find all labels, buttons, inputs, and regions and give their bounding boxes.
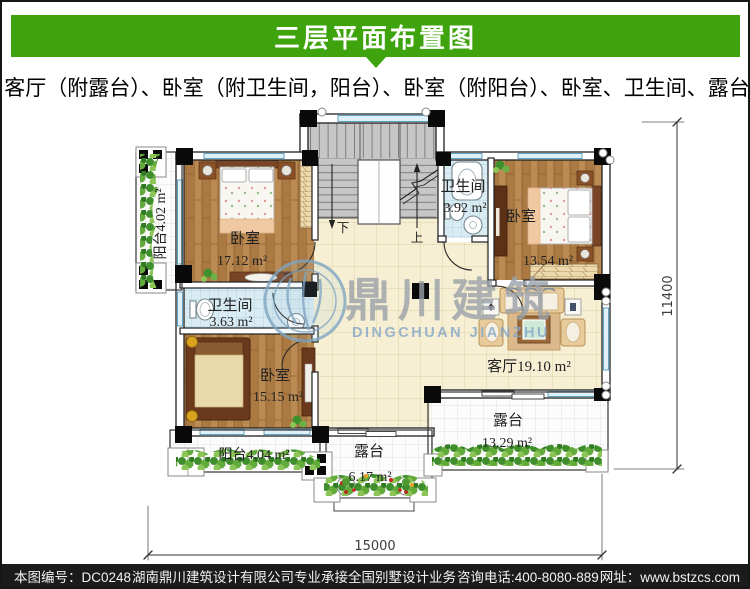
footer-company: 湖南鼎川建筑设计有限公司专业承接全国别墅设计业务 — [132, 566, 456, 586]
room-summary-line: 客厅（附露台）、卧室（附卫生间，阳台）、卧室（附阳台）、卧室、卫生间、露台 — [2, 72, 750, 102]
window — [204, 154, 284, 159]
lamp — [581, 250, 590, 259]
footer-website: 网址：www.bstzcs.com — [600, 566, 740, 586]
bedroom-top-right-name: 卧室 — [506, 208, 536, 225]
bedroom-bottom-left-area: 15.15 m² — [253, 390, 303, 405]
window — [518, 154, 582, 159]
lamp — [187, 411, 198, 422]
terrace-right-area: 13.29 m² — [482, 436, 532, 451]
lamp — [203, 166, 213, 176]
lamp — [282, 166, 292, 176]
bedroom-top-left-area: 17.12 m² — [217, 254, 267, 269]
stair-down-label: 下 — [337, 221, 350, 235]
footer-plan-number: 本图编号：DC0248 — [14, 566, 131, 586]
title-banner: 三层平面布置图 — [11, 15, 740, 57]
terrace-bottom-name: 露台 — [354, 443, 384, 460]
watermark-logo-icon — [265, 261, 345, 341]
bed-bottom-left — [186, 337, 250, 422]
bedroom-bottom-left-name: 卧室 — [260, 367, 290, 384]
bed-top-right — [528, 186, 601, 246]
window — [604, 308, 609, 370]
living-room-label: 客厅19.10 m² — [487, 358, 571, 375]
terrace-right-name: 露台 — [493, 412, 523, 429]
bathroom-right-name: 卫生间 — [440, 178, 485, 195]
terrace-step — [334, 498, 414, 511]
bathroom-left-name: 卫生间 — [207, 297, 252, 314]
stair-up-label: 上 — [411, 231, 424, 245]
window — [178, 292, 183, 326]
window — [338, 116, 430, 122]
lamp — [581, 174, 590, 183]
sliding-door — [512, 394, 544, 399]
bed-top-left — [216, 159, 278, 233]
balcony-left-label: 阳台4.02 m² — [153, 188, 169, 259]
toilet-tank — [190, 301, 196, 318]
bedroom-top-left-name: 卧室 — [230, 230, 260, 247]
banner-pointer — [366, 57, 386, 68]
sliding-door — [366, 432, 396, 437]
lamp — [187, 337, 198, 348]
page: 下 上 — [0, 0, 750, 589]
dimension-right: 11400 — [661, 275, 676, 316]
bedroom-top-right-area: 13.54 m² — [523, 254, 573, 269]
bathroom-right-area: 3.92 m² — [443, 201, 486, 216]
balcony-bottom-label: 阳台4.04 m² — [218, 447, 289, 463]
terrace-bottom-area: 6.17 m² — [348, 470, 391, 485]
sliding-door — [338, 429, 368, 434]
watermark-en: DINGCHUAN JIANZHU — [352, 325, 550, 341]
bathroom-left-area: 3.63 m² — [209, 315, 252, 330]
watermark-cn: 鼎川建筑 — [345, 274, 557, 326]
page-title: 三层平面布置图 — [274, 18, 477, 55]
footer-bar: 本图编号：DC0248 湖南鼎川建筑设计有限公司专业承接全国别墅设计业务 咨询电… — [2, 564, 750, 587]
washbasin — [464, 216, 482, 234]
footer-phone: 咨询电话:400-8080-889 — [457, 566, 599, 586]
dimension-bottom: 15000 — [354, 539, 395, 554]
